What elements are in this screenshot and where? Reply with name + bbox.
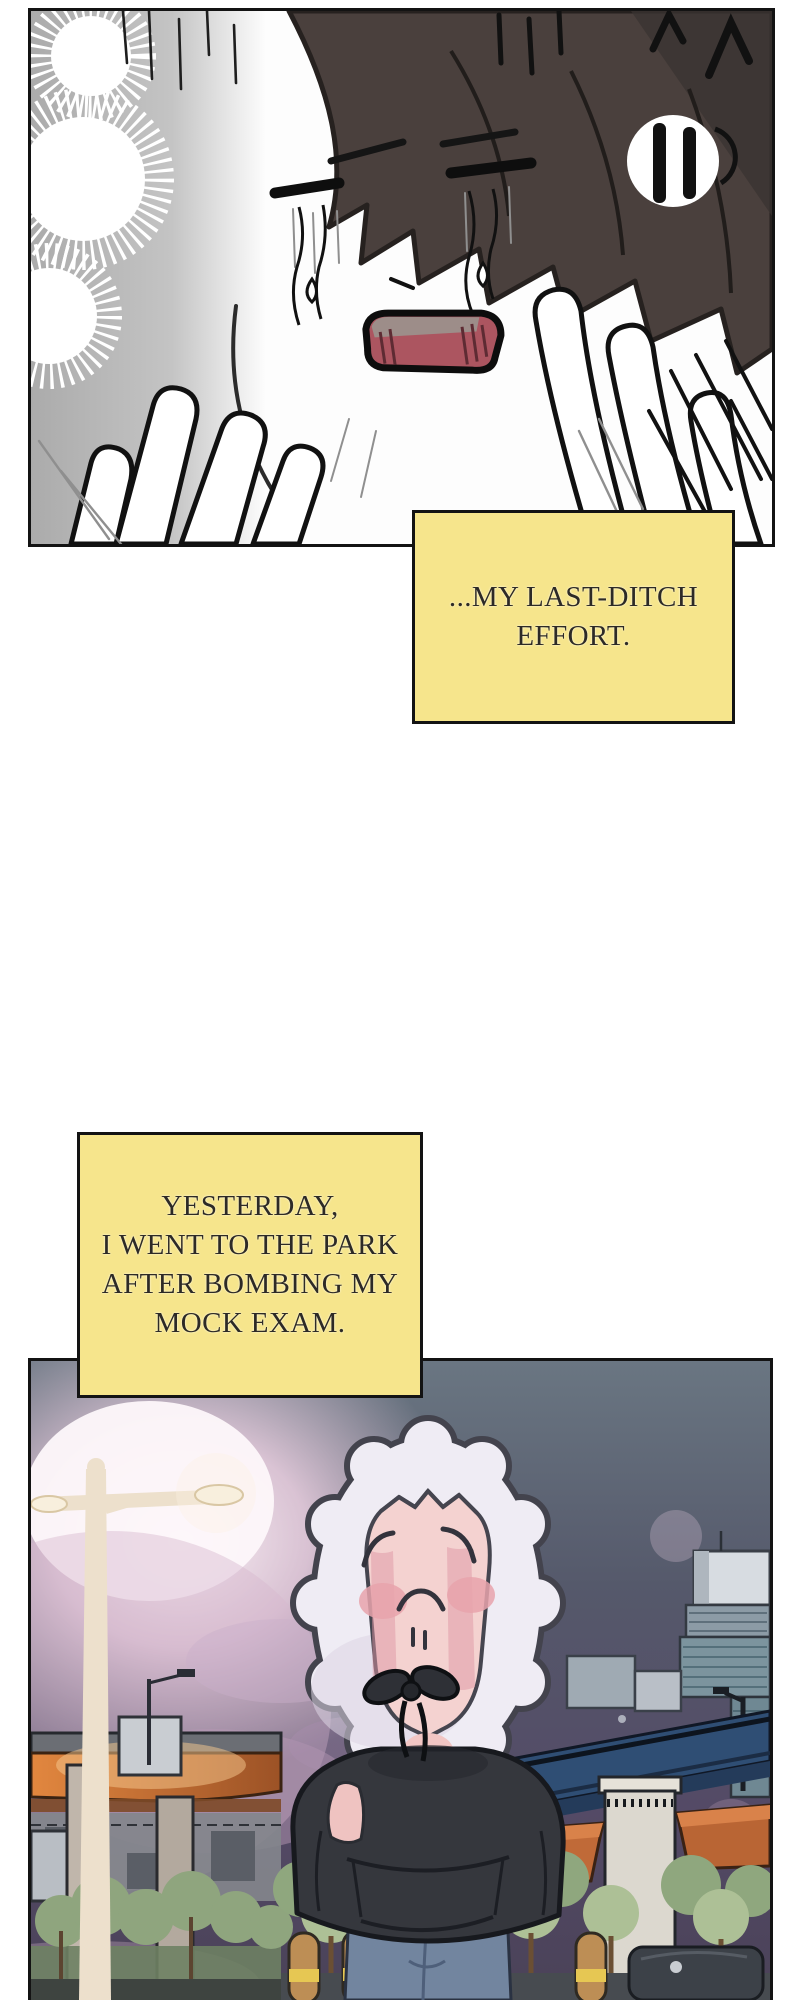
caption-line: YESTERDAY, (102, 1187, 399, 1226)
parked-car (629, 1947, 763, 2000)
hooded-character (293, 1418, 563, 2000)
park-scene-art (31, 1361, 770, 2000)
caption-text: ...MY LAST-DITCH EFFORT. (449, 578, 698, 656)
caption-line: I WENT TO THE PARK (102, 1226, 399, 1265)
crying-face-art (31, 11, 772, 544)
caption-line: ...MY LAST-DITCH (449, 578, 698, 617)
caption-box-yesterday-park: YESTERDAY, I WENT TO THE PARK AFTER BOMB… (77, 1132, 423, 1398)
panel-park-scene (28, 1358, 773, 2000)
caption-line: MOCK EXAM. (102, 1304, 399, 1343)
panel-crying-closeup (28, 8, 775, 547)
highway-underpass-left (31, 1717, 293, 2000)
hand-in-pocket (328, 1782, 363, 1842)
caption-box-last-ditch-effort: ...MY LAST-DITCH EFFORT. (412, 510, 735, 724)
mouth (364, 303, 504, 380)
caption-text: YESTERDAY, I WENT TO THE PARK AFTER BOMB… (102, 1187, 399, 1342)
webtoon-page: ...MY LAST-DITCH EFFORT. YESTERDAY, I WE… (0, 0, 800, 2000)
caption-line: AFTER BOMBING MY (102, 1265, 399, 1304)
caption-line: EFFORT. (449, 617, 698, 656)
